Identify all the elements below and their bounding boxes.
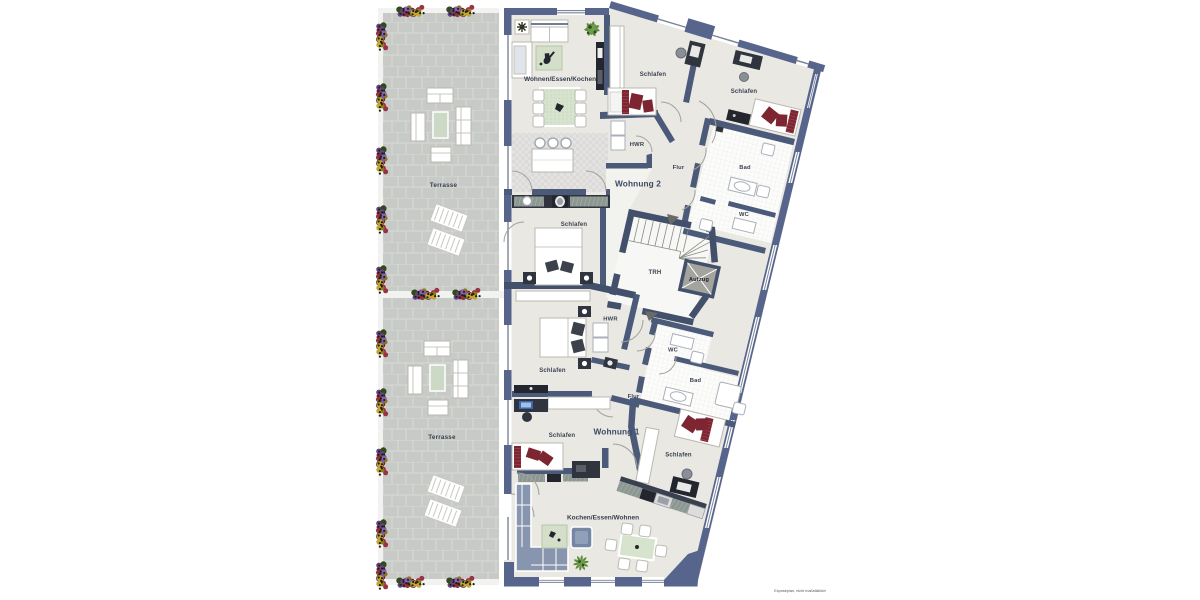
svg-text:Flur: Flur	[628, 394, 640, 400]
svg-text:Wohnung 1: Wohnung 1	[594, 427, 640, 437]
svg-text:Exposéplan, nicht maßstäblich: Exposéplan, nicht maßstäblich	[774, 589, 826, 593]
svg-text:Wohnen/Essen/Kochen: Wohnen/Essen/Kochen	[524, 76, 596, 83]
svg-text:HWR: HWR	[630, 142, 645, 148]
svg-text:Bad: Bad	[739, 165, 751, 171]
svg-text:Schlafen: Schlafen	[665, 453, 692, 459]
svg-text:Terrasse: Terrasse	[430, 182, 458, 189]
svg-text:Bad: Bad	[690, 378, 702, 384]
svg-text:Flur: Flur	[673, 165, 685, 171]
svg-text:WC: WC	[668, 348, 679, 354]
svg-text:Wohnung 2: Wohnung 2	[615, 179, 661, 189]
svg-text:TRH: TRH	[649, 270, 662, 276]
svg-text:Schlafen: Schlafen	[561, 222, 588, 228]
svg-text:Kochen/Essen/Wohnen: Kochen/Essen/Wohnen	[567, 515, 639, 522]
svg-text:Schlafen: Schlafen	[640, 72, 667, 78]
svg-text:WC: WC	[739, 212, 750, 218]
svg-text:Schlafen: Schlafen	[539, 368, 566, 374]
svg-text:Schlafen: Schlafen	[731, 89, 758, 95]
svg-text:Schlafen: Schlafen	[549, 433, 576, 439]
svg-text:Aufzug: Aufzug	[689, 277, 710, 283]
svg-text:HWR: HWR	[603, 317, 618, 323]
svg-text:Terrasse: Terrasse	[428, 434, 456, 441]
